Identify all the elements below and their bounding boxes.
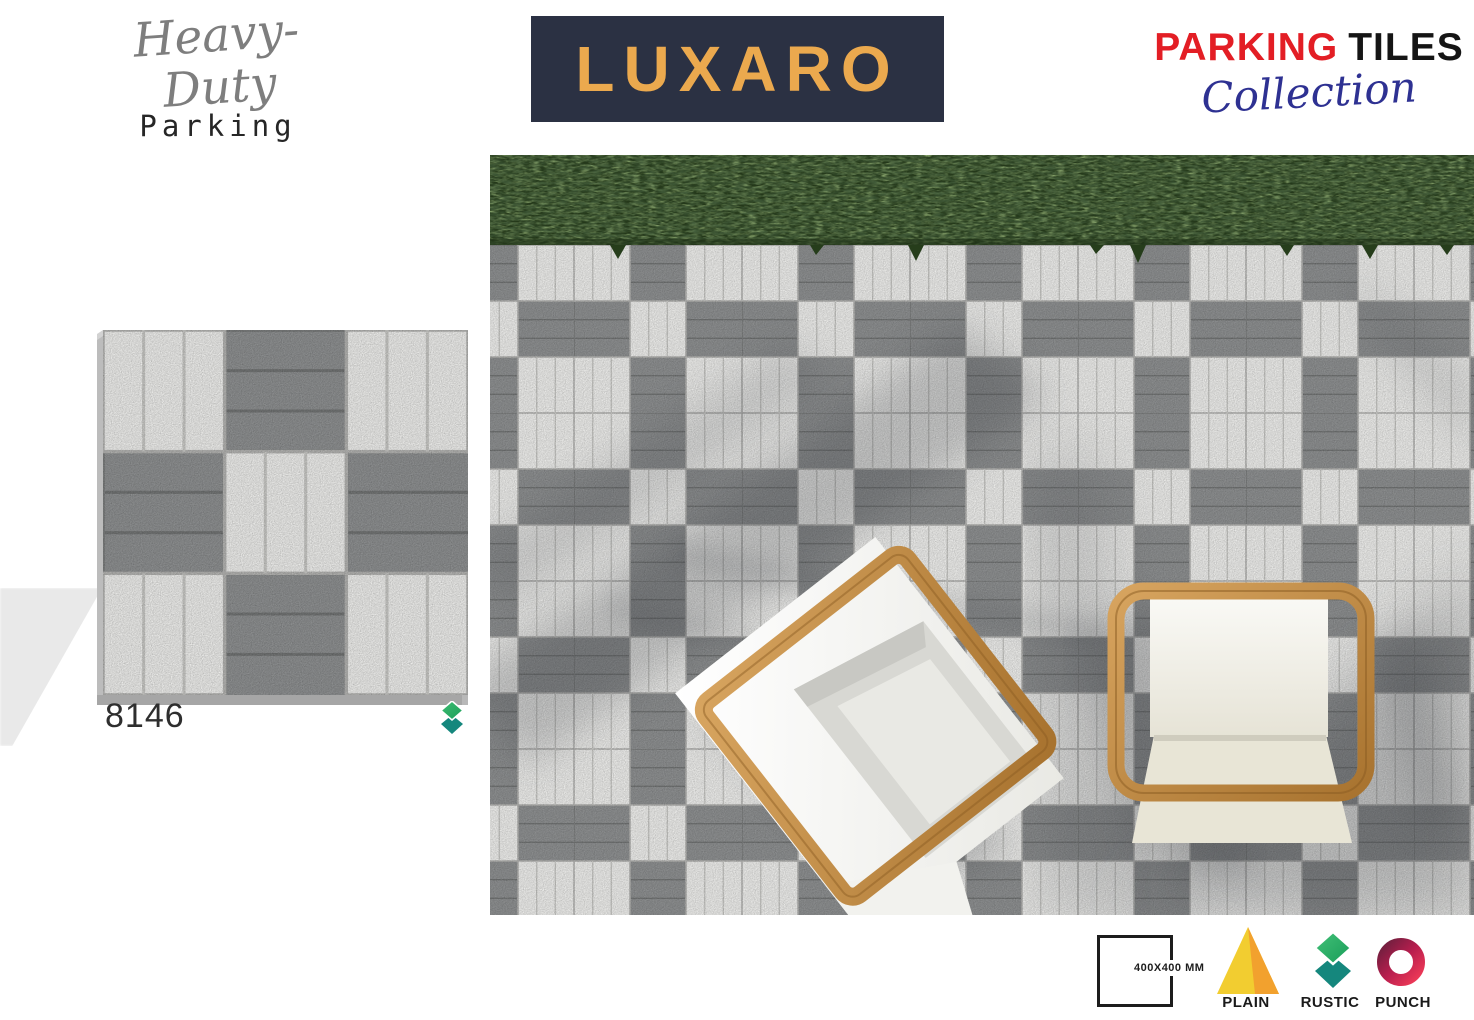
brand-logo: LUXARO — [531, 16, 944, 122]
scene-photo — [490, 155, 1474, 915]
collection-script: Collection — [1145, 60, 1473, 126]
rustic-diamonds-legend-icon — [1313, 932, 1353, 995]
brand-name: LUXARO — [575, 32, 899, 106]
tagline-script-text: Heavy-Duty — [85, 1, 352, 122]
product-code: 8146 — [105, 697, 185, 736]
collection-title: PARKINGTILES Collection — [1146, 26, 1472, 117]
plain-triangle-icon — [1215, 926, 1281, 1001]
catalog-page: Heavy-Duty Parking LUXARO PARKINGTILES C… — [0, 0, 1474, 1020]
size-label: 400X400 MM — [1131, 960, 1207, 976]
rustic-label: RUSTIC — [1294, 994, 1366, 1011]
rustic-diamonds-icon — [440, 701, 464, 740]
punch-ring-icon — [1376, 937, 1426, 992]
punch-label: PUNCH — [1372, 994, 1434, 1011]
tile-swatch-image — [97, 330, 469, 706]
plain-label: PLAIN — [1212, 994, 1280, 1011]
collection-word-parking: PARKING — [1154, 26, 1338, 69]
tagline: Heavy-Duty Parking — [88, 10, 348, 143]
swatch-cast-shadow — [0, 588, 102, 746]
